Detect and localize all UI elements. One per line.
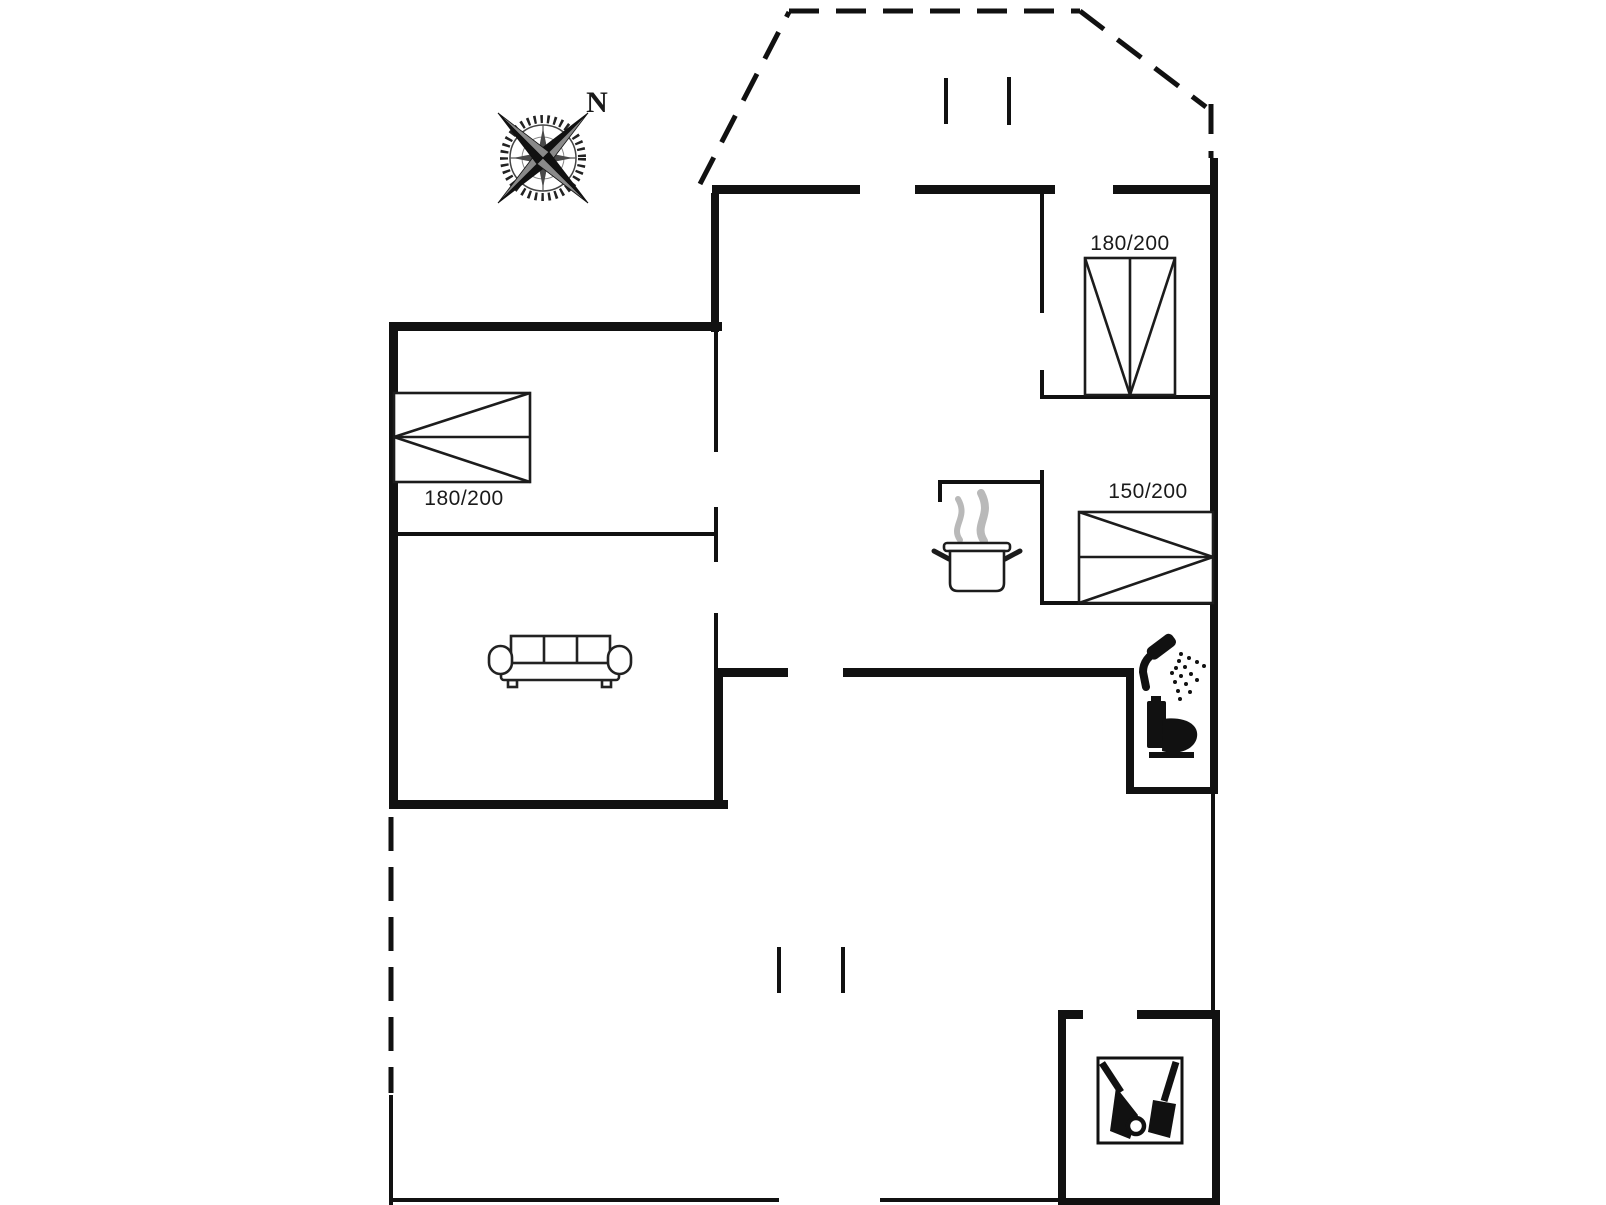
wall-utility-right xyxy=(1212,1010,1220,1205)
wall-corridor-left xyxy=(714,668,788,677)
wall-corridor-right xyxy=(843,668,1131,677)
sofa-arm-left xyxy=(489,646,512,674)
north-label: N xyxy=(586,86,608,119)
wall-top-mid-segment xyxy=(915,185,1055,194)
door-marker-bottom-left xyxy=(777,947,781,993)
toilet-icon xyxy=(1147,696,1197,758)
wall-bottom-right xyxy=(880,1198,1058,1202)
wall-kitchen-counter xyxy=(938,480,1042,484)
wall-bathroom-left xyxy=(1126,668,1134,794)
sofa-back xyxy=(511,636,610,663)
wall-utility-left xyxy=(1058,1010,1066,1205)
door-marker-top-left xyxy=(944,78,948,124)
toilet-bowl xyxy=(1162,718,1197,752)
wall-hall-thin-c xyxy=(714,613,718,670)
bed-icon-left-bedroom xyxy=(394,393,530,482)
wall-right xyxy=(1210,158,1218,794)
wall-bathroom-bottom xyxy=(1126,787,1218,794)
wall-bedroom2-left-b xyxy=(1040,370,1044,399)
door-marker-top-right xyxy=(1007,77,1011,125)
bed-size-label-top-right: 180/200 xyxy=(1090,232,1169,255)
wall-top-left-segment xyxy=(712,185,860,194)
bed-icon-top-right-bedroom xyxy=(1085,258,1175,395)
wall-top-right-segment xyxy=(1113,185,1214,194)
wall-utility-top-right xyxy=(1137,1010,1220,1019)
door-marker-bottom-right xyxy=(841,947,845,993)
bed-size-label-left: 180/200 xyxy=(424,487,503,510)
wall-utility-top-left xyxy=(1058,1010,1083,1019)
wall-hall-thin-a xyxy=(714,332,718,452)
wall-hall-upper xyxy=(711,193,719,332)
pot-body xyxy=(950,551,1004,591)
vacuum-wheel xyxy=(1128,1118,1144,1134)
wall-left-block-bottom xyxy=(389,800,728,809)
wall-bedroom3-left xyxy=(1040,470,1044,605)
toilet-base xyxy=(1149,752,1194,758)
shower-icon xyxy=(1143,632,1206,701)
sofa-arm-right xyxy=(608,646,631,674)
floor-plan: N 180/200 180/200 150/200 xyxy=(0,0,1606,1205)
wall-utility-bottom xyxy=(1058,1198,1220,1205)
wall-bottom-left xyxy=(389,1198,779,1202)
shower-spray xyxy=(1170,652,1206,701)
terrace-edge-left-diagonal xyxy=(700,12,789,184)
wall-kitchen-counter-end xyxy=(938,480,942,502)
bed-icon-right-bedroom xyxy=(1079,512,1213,603)
cooking-pot-icon xyxy=(934,493,1020,591)
wall-bedroom-living-divider xyxy=(397,532,717,536)
compass-rose-icon: N xyxy=(498,86,608,203)
terrace-edge-right-diagonal xyxy=(1080,11,1206,107)
cleaning-tools-icon xyxy=(1098,1058,1182,1143)
wall-left-block-top xyxy=(389,322,722,331)
steam xyxy=(957,493,985,541)
wall-bedroom2-left-a xyxy=(1040,193,1044,313)
wall-hall-lower xyxy=(714,668,723,809)
sofa-icon xyxy=(489,636,631,687)
bed-size-label-right: 150/200 xyxy=(1108,480,1187,503)
wall-right-lower-thin xyxy=(1211,794,1215,1010)
wall-lower-left-thin xyxy=(389,1095,393,1205)
